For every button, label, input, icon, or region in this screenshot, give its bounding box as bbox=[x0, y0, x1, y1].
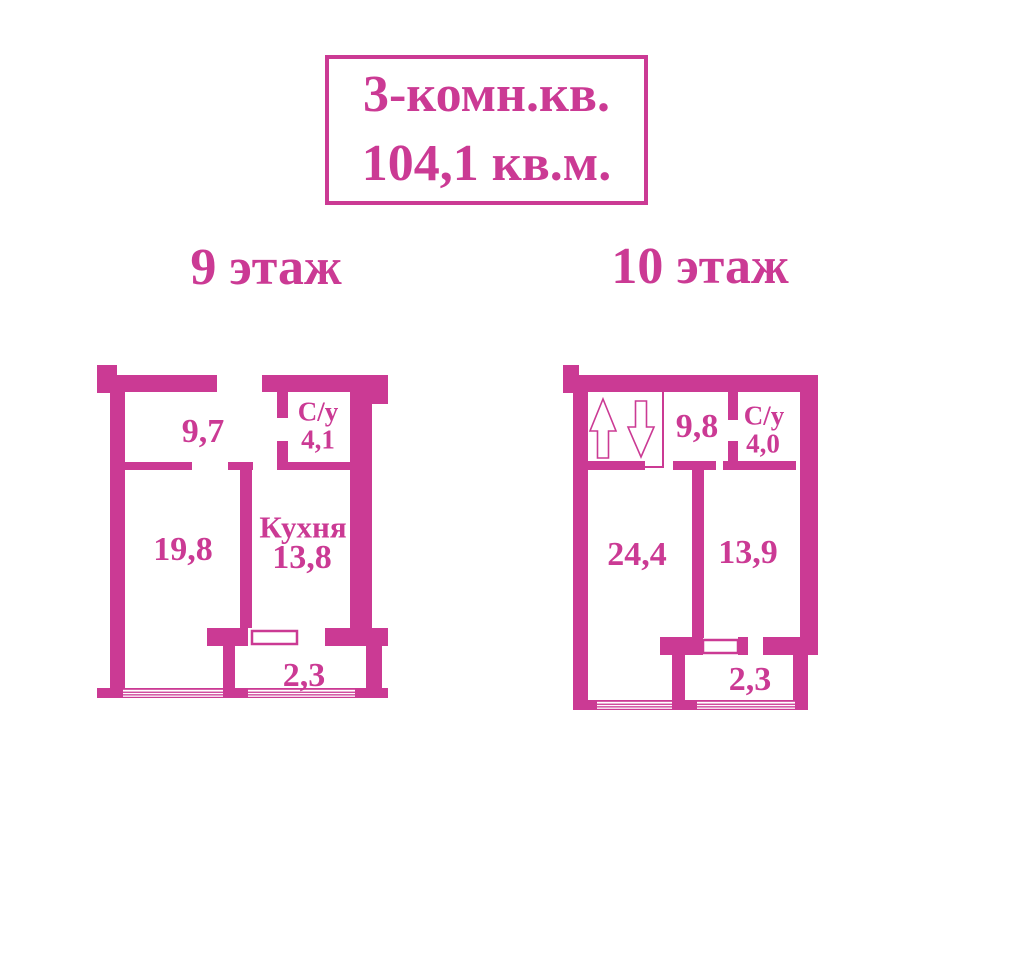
plans-drawing bbox=[0, 0, 1024, 965]
window bbox=[697, 700, 795, 710]
balcony-wall bbox=[325, 628, 388, 646]
stairs-up-arrow-icon bbox=[590, 399, 616, 458]
balcony-wall bbox=[366, 646, 382, 688]
floor9-hallway-area-label: 9,7 bbox=[182, 415, 225, 449]
balcony-wall bbox=[793, 655, 808, 700]
interior-wall bbox=[277, 462, 368, 470]
wall-segment bbox=[573, 700, 597, 710]
balcony-wall bbox=[660, 637, 703, 655]
wall-segment bbox=[573, 392, 588, 700]
window bbox=[597, 700, 672, 710]
interior-wall bbox=[692, 470, 704, 638]
bathroom-wall bbox=[728, 392, 738, 420]
wall-segment bbox=[372, 392, 388, 404]
balcony-window-sill bbox=[252, 631, 297, 644]
stairs-down-arrow-icon bbox=[628, 401, 654, 457]
floor9-bathroom-name-label: С/у bbox=[298, 399, 339, 426]
floor9-balcony-area-label: 2,3 bbox=[283, 659, 326, 693]
interior-wall bbox=[588, 461, 645, 470]
stairs-box bbox=[584, 390, 663, 467]
floor9-bathroom-area-label: 4,1 bbox=[301, 427, 335, 454]
wall-segment bbox=[110, 392, 125, 688]
interior-wall bbox=[723, 461, 796, 470]
balcony-wall bbox=[672, 700, 697, 710]
floor10-living-area-label: 24,4 bbox=[607, 538, 667, 572]
wall-segment bbox=[800, 392, 818, 638]
floor9-kitchen-name-label: Кухня bbox=[259, 512, 346, 543]
balcony-wall bbox=[672, 655, 685, 700]
floor-plan-sheet: 3-комн.кв. 104,1 кв.м. 9 этаж 10 этаж bbox=[0, 0, 1024, 965]
wall-segment bbox=[97, 688, 123, 698]
interior-wall bbox=[228, 462, 253, 470]
bathroom-wall bbox=[277, 392, 288, 418]
balcony-wall bbox=[355, 688, 388, 698]
wall-segment bbox=[350, 392, 372, 646]
balcony-wall bbox=[223, 646, 235, 688]
interior-wall bbox=[125, 462, 192, 470]
floor10-bedroom-area-label: 13,9 bbox=[718, 536, 778, 570]
balcony-wall bbox=[795, 700, 808, 710]
floor10-balcony-area-label: 2,3 bbox=[729, 663, 772, 697]
floor9-living-area-label: 19,8 bbox=[153, 533, 213, 567]
floor10-hallway-area-label: 9,8 bbox=[676, 410, 719, 444]
wall-segment bbox=[262, 375, 388, 392]
balcony-wall bbox=[207, 628, 248, 646]
interior-wall bbox=[240, 470, 252, 628]
floor10-bathroom-area-label: 4,0 bbox=[746, 431, 780, 458]
floor9-kitchen-area-label: 13,8 bbox=[272, 541, 332, 575]
stairs-icon bbox=[584, 390, 663, 467]
balcony-wall bbox=[763, 637, 818, 655]
balcony-wall bbox=[738, 637, 748, 655]
floor10-bathroom-name-label: С/у bbox=[744, 403, 785, 430]
window bbox=[123, 688, 223, 698]
wall-segment bbox=[97, 375, 217, 392]
interior-wall bbox=[673, 461, 716, 470]
balcony-wall bbox=[223, 688, 248, 698]
balcony-window-sill bbox=[703, 640, 738, 653]
